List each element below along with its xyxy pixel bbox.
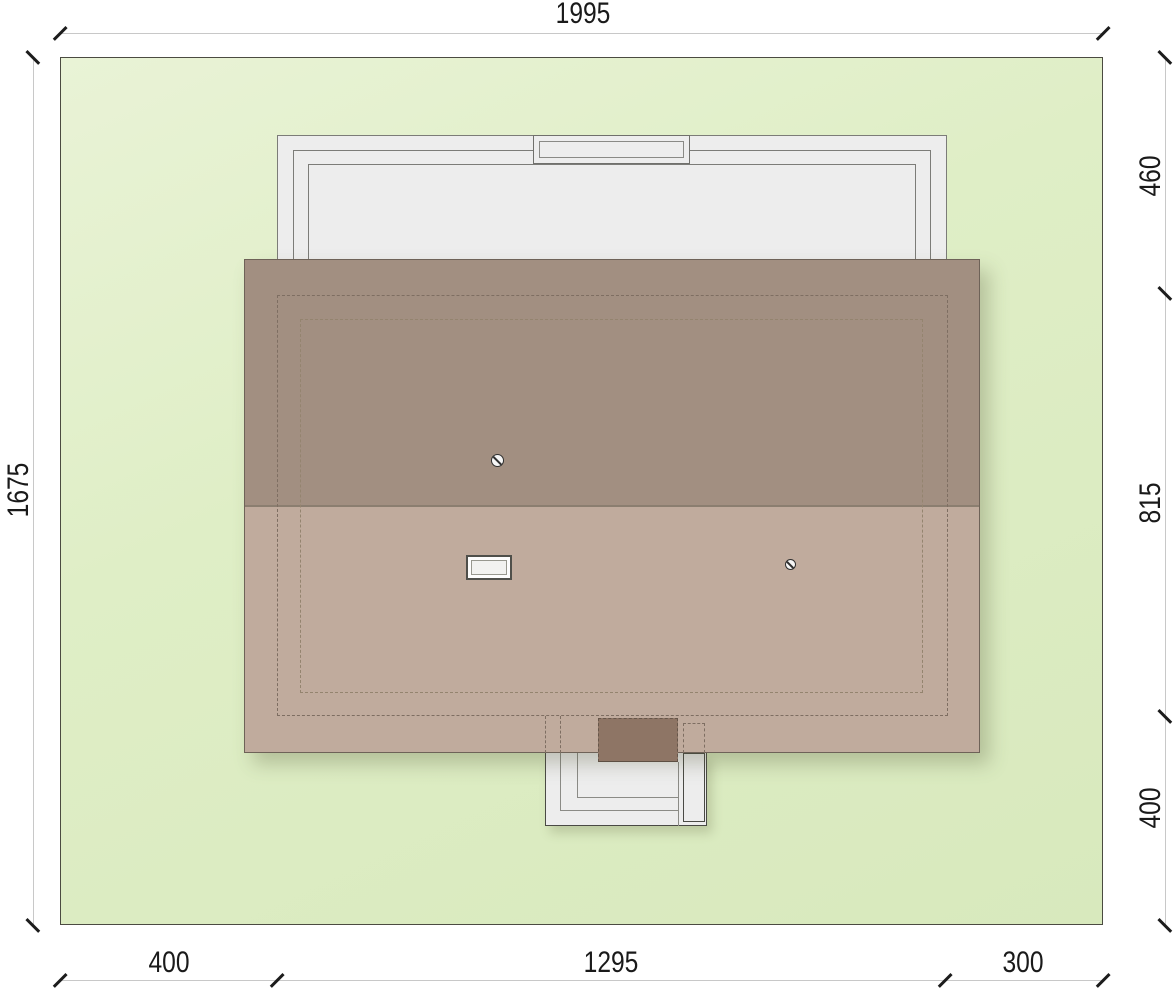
- porch-step-line: [577, 753, 578, 797]
- terrace-step-box-inner: [539, 141, 684, 158]
- porch-step-line: [678, 762, 679, 826]
- inner-outline-dashed: [300, 319, 923, 693]
- site-plan-canvas: 1995 1675 460 815 400 400 1295 300: [0, 0, 1176, 992]
- recess-dashed-line: [545, 716, 546, 753]
- porch-step-line: [560, 810, 678, 811]
- terrace-railing-inner: [308, 164, 916, 262]
- porch-step-line: [577, 797, 678, 798]
- dim-label-right-3: 400: [1136, 759, 1166, 857]
- porch-step-line: [560, 753, 561, 810]
- porch-pillar: [683, 753, 705, 822]
- entry-recess: [598, 718, 678, 762]
- roof-vent-icon: [785, 559, 796, 570]
- dim-label-right-1: 460: [1136, 127, 1166, 225]
- skylight-icon: [466, 555, 512, 580]
- dim-label-bottom-2: 1295: [562, 948, 660, 978]
- dim-line-top: [60, 33, 1103, 34]
- dim-label-left: 1675: [4, 441, 34, 539]
- dim-label-bottom-1: 400: [120, 948, 218, 978]
- dim-label-top: 1995: [534, 0, 632, 29]
- recess-dashed-line: [560, 716, 561, 753]
- dim-label-bottom-3: 300: [974, 948, 1072, 978]
- skylight-frame: [471, 560, 507, 575]
- dim-label-right-2: 815: [1136, 454, 1166, 552]
- roof-vent-icon: [491, 454, 504, 467]
- pillar-dashed-outline: [683, 723, 705, 753]
